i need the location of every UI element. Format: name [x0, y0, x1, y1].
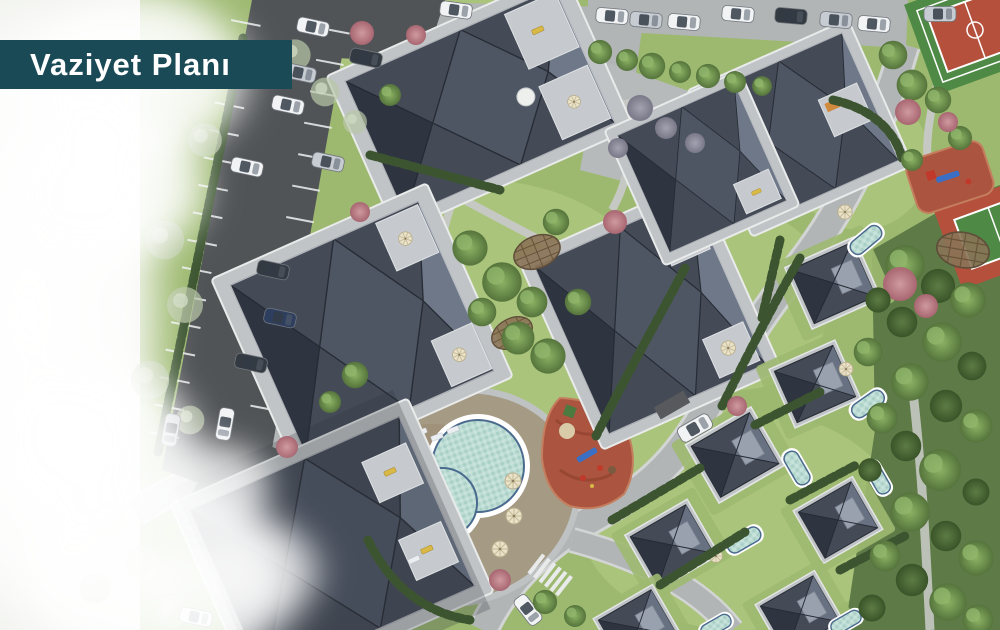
page-title: Vaziyet Planı: [0, 47, 231, 83]
site-plan-render: [0, 0, 1000, 630]
site-plan-screenshot: Vaziyet Planı: [0, 0, 1000, 630]
title-banner: Vaziyet Planı: [0, 40, 292, 89]
